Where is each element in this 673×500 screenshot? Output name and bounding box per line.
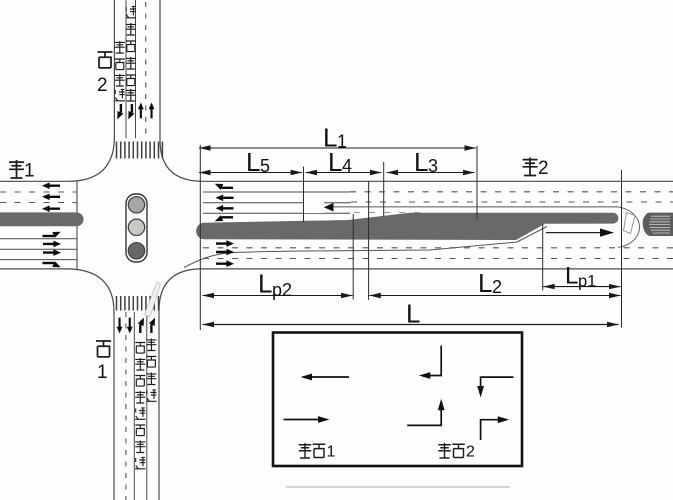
svg-text:2: 2 xyxy=(466,444,475,461)
svg-text:L: L xyxy=(478,268,492,298)
svg-text:p1: p1 xyxy=(578,273,596,291)
svg-text:2: 2 xyxy=(492,277,502,297)
svg-text:L: L xyxy=(406,299,420,329)
svg-text:1: 1 xyxy=(327,444,336,461)
svg-text:5: 5 xyxy=(260,156,270,176)
svg-text:1: 1 xyxy=(97,362,108,383)
svg-text:3: 3 xyxy=(428,156,438,176)
svg-text:L: L xyxy=(565,263,578,290)
svg-text:L: L xyxy=(246,147,260,177)
svg-text:p2: p2 xyxy=(272,280,292,300)
svg-text:L: L xyxy=(328,147,342,177)
svg-text:1: 1 xyxy=(24,161,35,182)
svg-text:L: L xyxy=(414,147,428,177)
svg-text:4: 4 xyxy=(342,156,352,176)
svg-text:L: L xyxy=(258,269,272,299)
svg-text:2: 2 xyxy=(97,75,108,96)
svg-text:2: 2 xyxy=(538,158,549,179)
